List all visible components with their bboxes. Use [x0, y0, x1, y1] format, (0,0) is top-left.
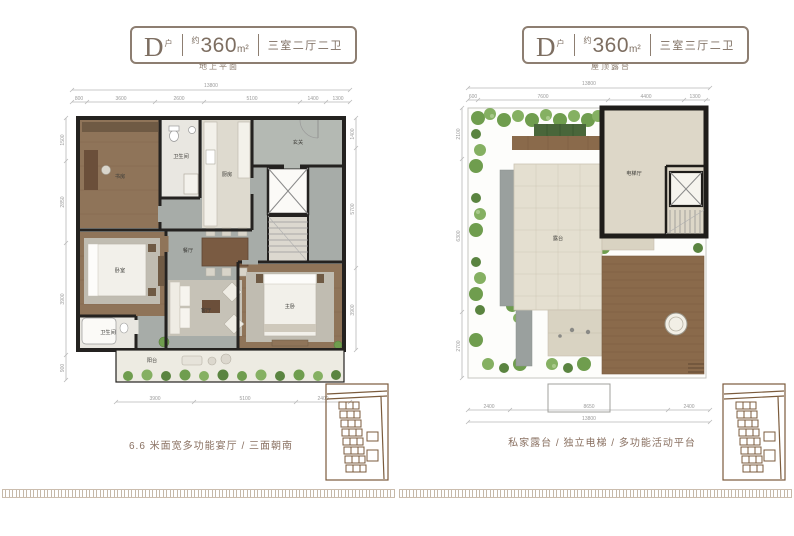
room-label-study: 书房 — [115, 172, 125, 180]
dim: 8650 — [583, 404, 594, 410]
dim: 4400 — [640, 94, 651, 100]
wood-deck — [602, 256, 704, 374]
type-suffix: 户 — [165, 31, 173, 57]
dim-total-top: 13800 — [204, 83, 218, 89]
room-count-label: 三室三厅二卫 — [660, 37, 735, 53]
floor-plan-left: 13800 800 3600 2600 5100 1400 1300 1500 … — [56, 80, 366, 435]
area-unit: m² — [629, 45, 641, 55]
badge-divider — [182, 34, 183, 56]
unit-area: 约 360 m² — [192, 35, 249, 56]
dim: 3600 — [115, 96, 126, 102]
dim: 3900 — [60, 293, 66, 304]
site-keyplan-left — [323, 380, 395, 484]
lower-structure-outline — [548, 384, 610, 412]
stair-elevator-block: 电梯厅 — [602, 108, 706, 236]
dim: 1400 — [307, 96, 318, 102]
dim: 2100 — [456, 128, 462, 139]
room-label-bath2: 卫生间 — [100, 328, 116, 336]
dim: 5100 — [239, 396, 250, 402]
dim: 6300 — [456, 230, 462, 241]
dim: 2700 — [456, 340, 462, 351]
dim: 2600 — [173, 96, 184, 102]
dim: 5100 — [246, 96, 257, 102]
room-count-label: 三室二厅二卫 — [268, 37, 343, 53]
dim: 2850 — [60, 196, 66, 207]
balcony — [116, 350, 344, 382]
type-suffix: 户 — [557, 31, 565, 57]
room-label-stair-hall: 电梯厅 — [626, 169, 642, 177]
dim: 2400 — [483, 404, 494, 410]
unit-type-letter: D 户 — [536, 31, 565, 60]
dim: 900 — [60, 364, 66, 373]
dim: 2400 — [683, 404, 694, 410]
floor-plan-right: 13800 600 7600 4400 1300 2100 6300 2700 … — [452, 78, 724, 438]
dim: 5700 — [350, 203, 356, 214]
dim-total-top: 13800 — [582, 81, 596, 87]
elevator-and-stairs — [268, 168, 308, 262]
dim: 3900 — [350, 304, 356, 315]
floor-label-right: 屋顶露台 — [522, 61, 700, 72]
room-label-balcony: 阳台 — [147, 356, 157, 364]
area-unit: m² — [237, 45, 249, 55]
spa-circle — [665, 313, 687, 335]
dim: 3900 — [149, 396, 160, 402]
unit-type-letter: D 户 — [144, 31, 173, 60]
area-value: 360 — [201, 35, 238, 56]
room-label-terrace: 露台 — [553, 234, 563, 242]
caption-right: 私家露台 / 独立电梯 / 多功能活动平台 — [452, 434, 752, 449]
type-letter: D — [536, 34, 556, 60]
unit-badge-right: D 户 约 360 m² 三室三厅二卫 — [522, 26, 749, 64]
badge-divider — [650, 34, 651, 56]
dim: 1300 — [332, 96, 343, 102]
dim: 7600 — [537, 94, 548, 100]
dim: 1400 — [350, 128, 356, 139]
room-label-master: 主卧 — [285, 302, 295, 310]
area-approx: 约 — [584, 37, 592, 45]
site-keyplan-right — [720, 380, 792, 484]
floorplan-brochure: D 户 约 360 m² 三室二厅二卫 地上平面 13800 800 — [0, 0, 794, 536]
dim: 1300 — [689, 94, 700, 100]
room-label-dining: 餐厅 — [183, 246, 193, 254]
badge-divider — [258, 34, 259, 56]
room-label-bath1: 卫生间 — [173, 152, 189, 160]
unit-badge-left: D 户 约 360 m² 三室二厅二卫 — [130, 26, 357, 64]
unit-area: 约 360 m² — [584, 35, 641, 56]
area-approx: 约 — [192, 37, 200, 45]
dim: 600 — [469, 94, 478, 100]
floor-label-left: 地上平面 — [130, 61, 308, 72]
ornamental-border-right — [399, 489, 792, 498]
dim: 800 — [75, 96, 84, 102]
room-label-living: 客厅 — [201, 306, 211, 314]
ornamental-border-left — [2, 489, 395, 498]
caption-left: 6.6 米面宽多功能宴厅 / 三面朝南 — [58, 437, 364, 452]
dim: 1500 — [60, 134, 66, 145]
area-value: 360 — [593, 35, 630, 56]
room-label-kitchen: 厨房 — [222, 170, 232, 178]
room-label-foyer: 玄关 — [293, 138, 303, 146]
type-letter: D — [144, 34, 164, 60]
dim-total-bottom: 13800 — [582, 416, 596, 422]
badge-divider — [574, 34, 575, 56]
room-label-bedroom: 卧室 — [115, 266, 125, 274]
